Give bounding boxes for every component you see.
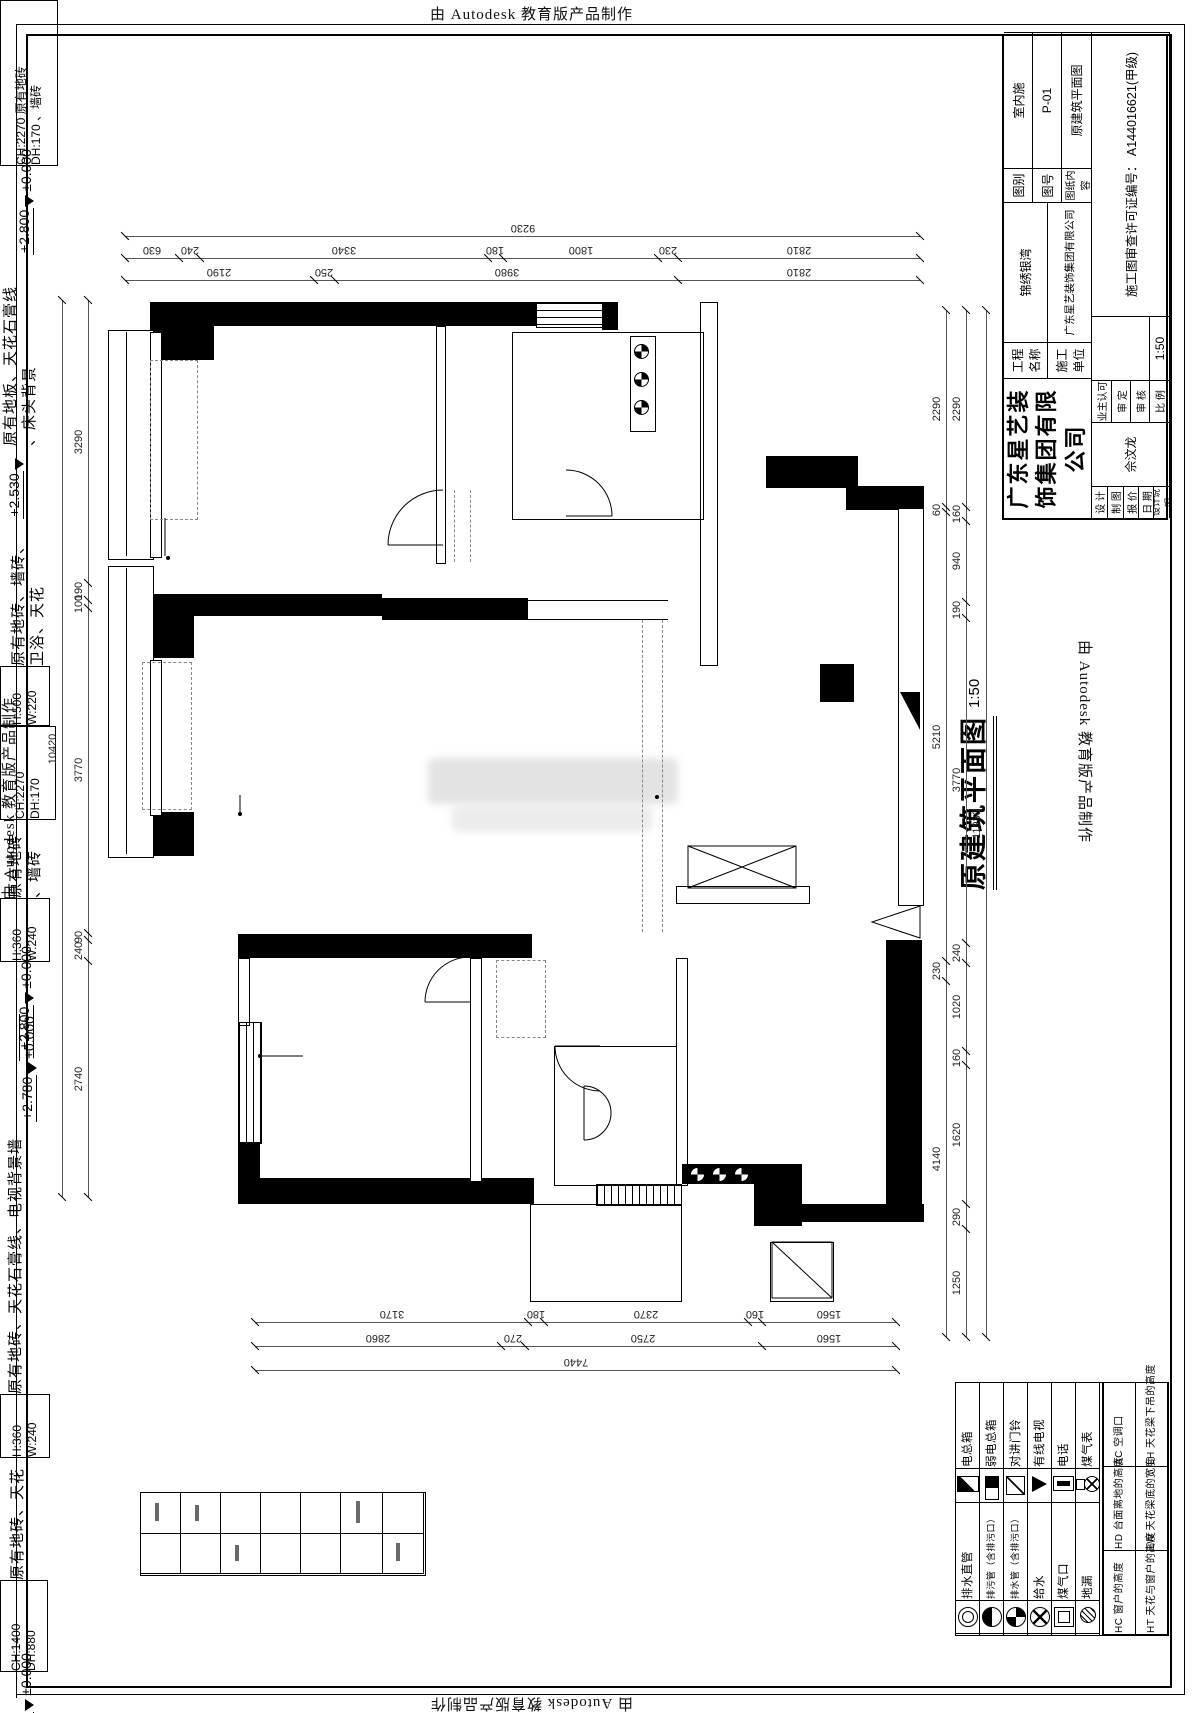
dimension-label: 180 — [527, 1308, 545, 1320]
level-upper: +2.530 — [6, 471, 24, 518]
level-lower: ±0.000 — [19, 1014, 37, 1061]
legend-code-line: AC 空调口 — [1114, 1383, 1127, 1465]
project-label: 工程名称 — [1004, 342, 1048, 378]
label-line: 原有地砖、墙砖、 — [10, 530, 29, 666]
content-label: 图纸内容 — [1062, 168, 1092, 202]
level-marker-text: +2.780±0.000 — [0, 1034, 56, 1102]
permit-number: 施工图审查许可证编号： A144016621(甲级) — [1092, 32, 1170, 316]
dimension-label: 2810 — [787, 266, 811, 278]
beam-dashed-line — [454, 490, 456, 562]
legend-label-text: 给水 — [1028, 1503, 1052, 1599]
wall-segment — [238, 934, 532, 958]
callout-box-text: CH:2270 原有地砖DH:170 、墙砖 — [1, 1, 57, 165]
dimension-line — [125, 258, 920, 259]
drawing-title-scale: 1:50 — [966, 679, 983, 708]
empty-cell — [1092, 316, 1150, 380]
dimension-label: 3170 — [379, 1308, 403, 1320]
autodesk-stamp-bottom: 由 Autodesk 教育版产品制作 — [430, 1694, 633, 1713]
legend-label: 排水管（含排污口） — [1004, 1503, 1028, 1599]
room-label: 原有地板、天花石膏线、床头背景 — [0, 236, 42, 446]
legend-label-text: 有线电视 — [1028, 1383, 1052, 1467]
legend-code: HD 台面离地的高度 — [1104, 1467, 1136, 1549]
legend-column: 电话煤气口 — [1052, 1383, 1076, 1635]
legend-label-text: 煤气口 — [1052, 1503, 1076, 1599]
legend-label-cell: 电话 — [1052, 1383, 1075, 1469]
legend-label-line: 弱电总箱 — [985, 1383, 999, 1467]
legend-code-line: HT 天花与窗户的高度 — [1146, 1551, 1159, 1633]
wall-segment — [820, 664, 854, 702]
category-label: 图别 — [1004, 168, 1033, 202]
legend-code-text: LH 天花梁下吊的高度 — [1136, 1383, 1168, 1465]
room-label-text: 原有地砖、墙砖 — [0, 820, 52, 898]
dimension-line — [255, 1346, 896, 1347]
dimension-label: 940 — [951, 552, 963, 570]
dimension-label: 5210 — [931, 724, 943, 748]
revision-table — [140, 1492, 426, 1576]
wall-segment — [886, 940, 922, 1222]
wall-line — [108, 330, 154, 560]
legend-label: 排水直管 — [956, 1503, 980, 1599]
watermark — [428, 758, 678, 804]
drawing-title-text: 原建筑平面图 — [952, 716, 997, 890]
dimension-label: 7440 — [563, 1356, 587, 1368]
level-triangle-icon — [25, 195, 34, 207]
callout-box: CH:2270DH:170 — [0, 726, 56, 820]
legend-label-line: 煤气表 — [1081, 1383, 1095, 1467]
dimension-label: 270 — [504, 1332, 522, 1344]
legend-label-cell: 电总箱 — [956, 1383, 979, 1469]
dimension-label: 190 — [951, 601, 963, 619]
label-line: 、墙砖 — [26, 820, 45, 898]
legend-code-cell: HD 台面离地的高度 — [1104, 1467, 1136, 1551]
level-triangle-icon — [15, 458, 24, 470]
level-lower: ±0.000 — [16, 147, 34, 194]
label-line: 原有地砖 — [7, 820, 26, 898]
level-marker: +2.530 — [0, 446, 30, 530]
legend-label: 弱电总箱 — [980, 1383, 1004, 1467]
legend-label: 电话 — [1052, 1383, 1076, 1467]
dimension-line — [88, 300, 89, 1197]
stove-burner-icon — [734, 1167, 749, 1182]
legend-symbol-cell — [1076, 1469, 1099, 1503]
dimension-line — [986, 310, 987, 1337]
legend-code-cell: HC 窗户的高度 — [1104, 1551, 1136, 1635]
callout-box-text: CH:2270DH:170 — [1, 727, 55, 819]
legend-code: AC 空调口 — [1104, 1383, 1136, 1465]
dimension-label: 180 — [486, 244, 504, 256]
room-label: 原有地砖、墙砖、卫浴、天花 — [0, 530, 58, 666]
label-line: 原有地板、天花石膏线 — [2, 236, 21, 446]
title-block: 广东星艺装饰集团有限公司 工程名称 锦绣银湾 施工单位 广东星艺装饰集团有限公司… — [1002, 34, 1168, 520]
wall-line — [770, 1242, 834, 1302]
radiator-icon — [634, 344, 649, 359]
dimension-label: 250 — [315, 266, 333, 278]
wall-line — [126, 568, 127, 854]
room-label-text: 原有地板、天花石膏线、床头背景 — [0, 236, 42, 446]
dimension-label: 1560 — [817, 1332, 841, 1344]
wall-line — [436, 326, 446, 564]
legend-label-text: 电总箱 — [956, 1383, 980, 1467]
wall-line — [554, 1046, 680, 1186]
dimension-label: 2290 — [931, 396, 943, 420]
dimension-label: 2750 — [631, 1332, 655, 1344]
legend-code-cell: LH 天花梁下吊的高度 — [1136, 1383, 1168, 1467]
dimension-label: 630 — [143, 244, 161, 256]
legend-label: 煤气表 — [1076, 1383, 1100, 1467]
legend-code-text: HD 台面离地的高度 — [1104, 1467, 1136, 1549]
label-line: DH:170 、墙砖 — [29, 1, 44, 165]
legend-label-cell: 给水 — [1028, 1503, 1051, 1601]
排水直管-icon — [958, 1607, 978, 1627]
wall-line — [898, 508, 924, 906]
legend-label-text: 排水管（含排污口） — [1004, 1503, 1028, 1599]
wall-line — [470, 958, 482, 1182]
label-line: 原有地砖、天花 — [9, 1458, 28, 1580]
legend-label: 有线电视 — [1028, 1383, 1052, 1467]
room-label: 原有地砖、天花石膏线、电视背景墙 — [0, 1102, 32, 1394]
legend-column: 弱电总箱排污管（含排污口） — [980, 1383, 1004, 1635]
beam-dashed-line — [642, 620, 644, 932]
dimension-label: 1800 — [568, 244, 592, 256]
dimension-label: 240 — [180, 244, 198, 256]
legend-table-symbols: 电总箱排水直管弱电总箱排污管（含排污口）对讲门铃排水管（含排污口）有线电视给水电… — [955, 1382, 1103, 1636]
legend-symbol-cell — [1052, 1469, 1075, 1503]
dimension-label: 160 — [951, 505, 963, 523]
field-date: 日 期 — [1139, 486, 1154, 518]
beam-dashed-line — [142, 662, 192, 810]
wall-line — [676, 958, 688, 1186]
煤气口-icon — [1054, 1607, 1074, 1627]
label-line: CH:2270 原有地砖 — [14, 1, 29, 165]
legend-label-line: 排水直管 — [961, 1503, 975, 1599]
legend-symbol-cell — [980, 1601, 1003, 1634]
dimension-label: 2810 — [787, 244, 811, 256]
room-label: 原有地砖、墙砖 — [0, 820, 52, 898]
field-design: 设 计 — [1092, 486, 1108, 518]
legend-label-line: 对讲门铃 — [1009, 1383, 1023, 1467]
wall-line — [676, 886, 810, 904]
level-marker-text: +2.800±0.000 — [0, 166, 50, 236]
wall-segment — [766, 456, 858, 488]
category-value: 室内施 — [1004, 32, 1033, 168]
legend-symbol-cell — [1004, 1469, 1027, 1503]
wall-line — [512, 332, 704, 520]
dimension-label: 2860 — [366, 1332, 390, 1344]
label-line: H:500 — [10, 667, 25, 725]
legend-symbol-cell — [1076, 1601, 1099, 1634]
legend-label-line: 煤气口 — [1057, 1503, 1071, 1599]
label-line: 原有地砖、天花石膏线、电视背景墙 — [7, 1102, 26, 1394]
wall-segment — [382, 598, 528, 620]
scale-value: 1:50 — [1150, 316, 1170, 380]
legend-label: 煤气口 — [1052, 1503, 1076, 1599]
legend-symbol-cell — [1052, 1601, 1075, 1634]
legend-label-text: 地漏 — [1076, 1503, 1100, 1599]
legend-column: 电总箱排水直管 — [956, 1383, 980, 1635]
legend-label-cell: 弱电总箱 — [980, 1383, 1003, 1469]
beam-dashed-line — [496, 960, 546, 1038]
legend-label-cell: 排水管（含排污口） — [1004, 1503, 1027, 1601]
callout-box: H:360W:240 — [0, 1394, 50, 1458]
dimension-label: 240 — [73, 942, 85, 960]
legend-label-text: 弱电总箱 — [980, 1383, 1004, 1467]
legend-label: 排污管（含排污口） — [980, 1503, 1004, 1599]
dimension-label: 3770 — [951, 768, 963, 792]
field-design-note: 设计说明 — [1154, 486, 1170, 518]
designer-name: 佘汶龙 — [1092, 422, 1170, 486]
wall-line — [126, 332, 127, 556]
wall-line — [530, 1204, 682, 1302]
给水-icon — [1030, 1607, 1050, 1627]
dimension-label: 4140 — [931, 1147, 943, 1171]
dimension-label: 60 — [931, 504, 943, 516]
wall-segment — [140, 594, 382, 616]
dimension-label: 100 — [73, 595, 85, 613]
radiator-icon — [634, 372, 649, 387]
field-approve: 审 定 — [1112, 380, 1131, 422]
content-value: 原建筑平面图 — [1062, 32, 1092, 168]
legend-symbol-cell — [1004, 1601, 1027, 1634]
legend-code: HC 窗户的高度 — [1104, 1551, 1136, 1633]
window — [536, 302, 604, 328]
legend-label-cell: 排水直管 — [956, 1503, 979, 1601]
legend-label: 给水 — [1028, 1503, 1052, 1599]
dimension-label: 290 — [951, 1208, 963, 1226]
contractor-name: 广东星艺装饰集团有限公司 — [1048, 202, 1092, 342]
field-quote: 报 价 — [1124, 486, 1139, 518]
dimension-label: 1560 — [817, 1308, 841, 1320]
legend-label-line: 电总箱 — [961, 1383, 975, 1467]
wall-line — [238, 958, 250, 1026]
room-label-text: 原有地砖、墙砖、卫浴、天花 — [0, 530, 58, 666]
legend-label: 地漏 — [1076, 1503, 1100, 1599]
legend-label-cell: 煤气表 — [1076, 1383, 1099, 1469]
legend-symbol-cell — [956, 1601, 979, 1634]
radiator-icon — [634, 400, 649, 415]
legend-code-cell: HT 天花与窗户的高度 — [1136, 1551, 1168, 1635]
autodesk-stamp-top: 由 Autodesk 教育版产品制作 — [430, 3, 633, 24]
stove-burner-icon — [690, 1167, 705, 1182]
dimension-label: 3340 — [332, 244, 356, 256]
legend-label-text: 排污管（含排污口） — [980, 1503, 1004, 1599]
level-lower: ±0.000 — [16, 944, 34, 991]
level-marker-text: +2.800±0.000 — [0, 1672, 50, 1713]
cad-sheet: 由 Autodesk 教育版产品制作 由 Autodesk 教育版产品制作 由 … — [0, 0, 1200, 1713]
对讲门铃-icon — [1006, 1476, 1025, 1495]
legend-code-line: LH 天花梁下吊的高度 — [1146, 1383, 1159, 1465]
dimension-label: 3770 — [73, 758, 85, 782]
room-label-text: 原有地砖、天花 — [0, 1458, 36, 1580]
legend-label-cell: 对讲门铃 — [1004, 1383, 1027, 1469]
legend-column: 对讲门铃排水管（含排污口） — [1004, 1383, 1028, 1635]
legend-label-line: 有线电视 — [1033, 1383, 1047, 1467]
level-values: +2.800±0.000 — [0, 166, 50, 236]
legend-symbol-cell — [1028, 1469, 1051, 1503]
legend-label-cell: 地漏 — [1076, 1503, 1099, 1601]
company-name: 广东星艺装饰集团有限公司 — [1004, 378, 1092, 518]
dimension-label: 2190 — [207, 266, 231, 278]
dimension-line — [966, 310, 967, 1337]
dimension-label: 3290 — [73, 429, 85, 453]
callout-box-text: H:500W:220 — [1, 667, 49, 725]
legend-label-text: 煤气表 — [1076, 1383, 1100, 1467]
dimension-label: 2370 — [633, 1308, 657, 1320]
label-line: 卫浴、天花 — [29, 530, 48, 666]
legend-label-line: 电话 — [1057, 1383, 1071, 1467]
弱电总箱-icon — [985, 1476, 999, 1500]
legend-symbol-cell — [980, 1469, 1003, 1503]
label-line: H:360 — [10, 1395, 25, 1457]
autodesk-stamp-right: 由 Autodesk 教育版产品制作 — [1076, 640, 1096, 920]
level-marker: +2.800±0.000 — [0, 1672, 50, 1713]
callout-box-text: H:360W:240 — [1, 1395, 49, 1457]
dimension-label: 160 — [951, 1049, 963, 1067]
label-line: W:240 — [25, 1395, 40, 1457]
field-owner-approve: 业主认可 — [1092, 380, 1112, 422]
电总箱-icon — [957, 1476, 979, 1492]
dimension-line — [125, 280, 920, 281]
level-marker-text: +2.530 — [0, 446, 30, 530]
legend-label-cell: 排污管（含排污口） — [980, 1503, 1003, 1601]
legend-table-codes: AC 空调口HD 台面离地的高度HC 窗户的高度LH 天花梁下吊的高度LW 天花… — [1103, 1382, 1169, 1636]
legend-code-text: HC 窗户的高度 — [1104, 1551, 1136, 1633]
sheet-no-value: P-01 — [1033, 32, 1062, 168]
煤气表-icon — [1076, 1476, 1100, 1492]
dimension-label: 1250 — [951, 1271, 963, 1295]
beam-dashed-line — [662, 620, 664, 932]
dimension-label: 1020 — [951, 995, 963, 1019]
field-draft: 制 图 — [1108, 486, 1124, 518]
field-check: 审 核 — [1131, 380, 1150, 422]
level-marker: +2.800±0.000 — [0, 166, 50, 236]
legend-label: 电总箱 — [956, 1383, 980, 1467]
window — [596, 1184, 682, 1206]
dimension-line — [255, 1370, 896, 1371]
level-triangle-icon — [28, 1062, 37, 1074]
beam-dashed-line — [470, 490, 472, 562]
legend-label-text: 电话 — [1052, 1383, 1076, 1467]
beam-dashed-line — [150, 360, 198, 520]
callout-box: CH:2270 原有地砖DH:170 、墙砖 — [0, 0, 58, 166]
label-line: W:220 — [25, 667, 40, 725]
label-line: CH:2270 — [13, 727, 28, 819]
stove-burner-icon — [712, 1167, 727, 1182]
wall-segment — [754, 1204, 924, 1222]
watermark — [452, 806, 652, 832]
dimension-label: 3980 — [494, 266, 518, 278]
callout-box: H:500W:220 — [0, 666, 50, 726]
dimension-label: 1620 — [951, 1122, 963, 1146]
legend-code-text: AC 空调口 — [1104, 1383, 1136, 1465]
电话-icon — [1053, 1476, 1074, 1491]
legend-label-line: 排污管（含排污口） — [986, 1503, 997, 1599]
legend-code-text: HT 天花与窗户的高度 — [1136, 1551, 1168, 1633]
legend-code-cell: AC 空调口 — [1104, 1383, 1136, 1467]
legend-column: 有线电视给水 — [1028, 1383, 1052, 1635]
dimension-label: 230 — [659, 244, 677, 256]
label-line: DH:170 — [28, 727, 43, 819]
legend-label-cell: 煤气口 — [1052, 1503, 1075, 1601]
window — [238, 1022, 262, 1144]
legend-label: 对讲门铃 — [1004, 1383, 1028, 1467]
legend-code-line: HC 窗户的高度 — [1114, 1551, 1127, 1633]
level-triangle-icon — [25, 1699, 34, 1711]
room-label: 原有地砖、天花 — [0, 1458, 36, 1580]
legend-label-line: 地漏 — [1081, 1503, 1095, 1599]
dimension-line — [255, 1322, 896, 1323]
wall-segment — [238, 1178, 534, 1204]
contractor-label: 施工单位 — [1048, 342, 1092, 378]
dimension-label: 160 — [746, 1308, 764, 1320]
排污管（含排污口）-icon — [982, 1607, 1002, 1627]
legend-code: HT 天花与窗户的高度 — [1136, 1551, 1168, 1633]
有线电视-icon — [1032, 1476, 1047, 1492]
sheet-no-label: 图号 — [1033, 168, 1062, 202]
level-values: +2.800±0.000 — [0, 1672, 50, 1713]
dimension-label: 11930 — [971, 809, 983, 839]
dimension-label: 230 — [931, 962, 943, 980]
legend-label-text: 排水直管 — [956, 1503, 980, 1599]
dimension-line — [125, 236, 920, 237]
level-marker: +2.780±0.000 — [0, 1034, 56, 1102]
level-triangle-icon — [25, 992, 34, 1004]
wall-segment — [846, 486, 924, 510]
dimension-label: 240 — [951, 944, 963, 962]
dimension-label: 2290 — [951, 396, 963, 420]
legend-code: LH 天花梁下吊的高度 — [1136, 1383, 1168, 1465]
legend-label-cell: 有线电视 — [1028, 1383, 1051, 1469]
wall-line — [528, 600, 668, 620]
room-label-text: 原有地砖、天花石膏线、电视背景墙 — [0, 1102, 32, 1394]
field-scale: 比 例 — [1150, 380, 1170, 422]
level-lower: ±0.000 — [16, 1651, 34, 1698]
level-values: +2.780±0.000 — [0, 1034, 56, 1102]
legend-label-line: 排水管（含排污口） — [1010, 1503, 1021, 1599]
dimension-line — [62, 300, 63, 1197]
排水管（含排污口）-icon — [1006, 1607, 1026, 1627]
dimension-label: 2740 — [73, 1067, 85, 1091]
level-values: +2.530 — [0, 446, 30, 530]
project-name: 锦绣银湾 — [1004, 202, 1048, 342]
legend-symbol-cell — [1028, 1601, 1051, 1634]
legend-column: 煤气表地漏 — [1076, 1383, 1100, 1635]
dimension-line — [946, 310, 947, 1337]
dimension-label: 9230 — [510, 222, 534, 234]
legend-label-text: 对讲门铃 — [1004, 1383, 1028, 1467]
legend-label-line: 给水 — [1033, 1503, 1047, 1599]
label-line: 、床头背景 — [21, 236, 40, 446]
地漏-icon — [1080, 1607, 1096, 1623]
legend-code-line: HD 台面离地的高度 — [1114, 1467, 1127, 1549]
wall-segment — [602, 302, 618, 330]
legend-symbol-cell — [956, 1469, 979, 1503]
